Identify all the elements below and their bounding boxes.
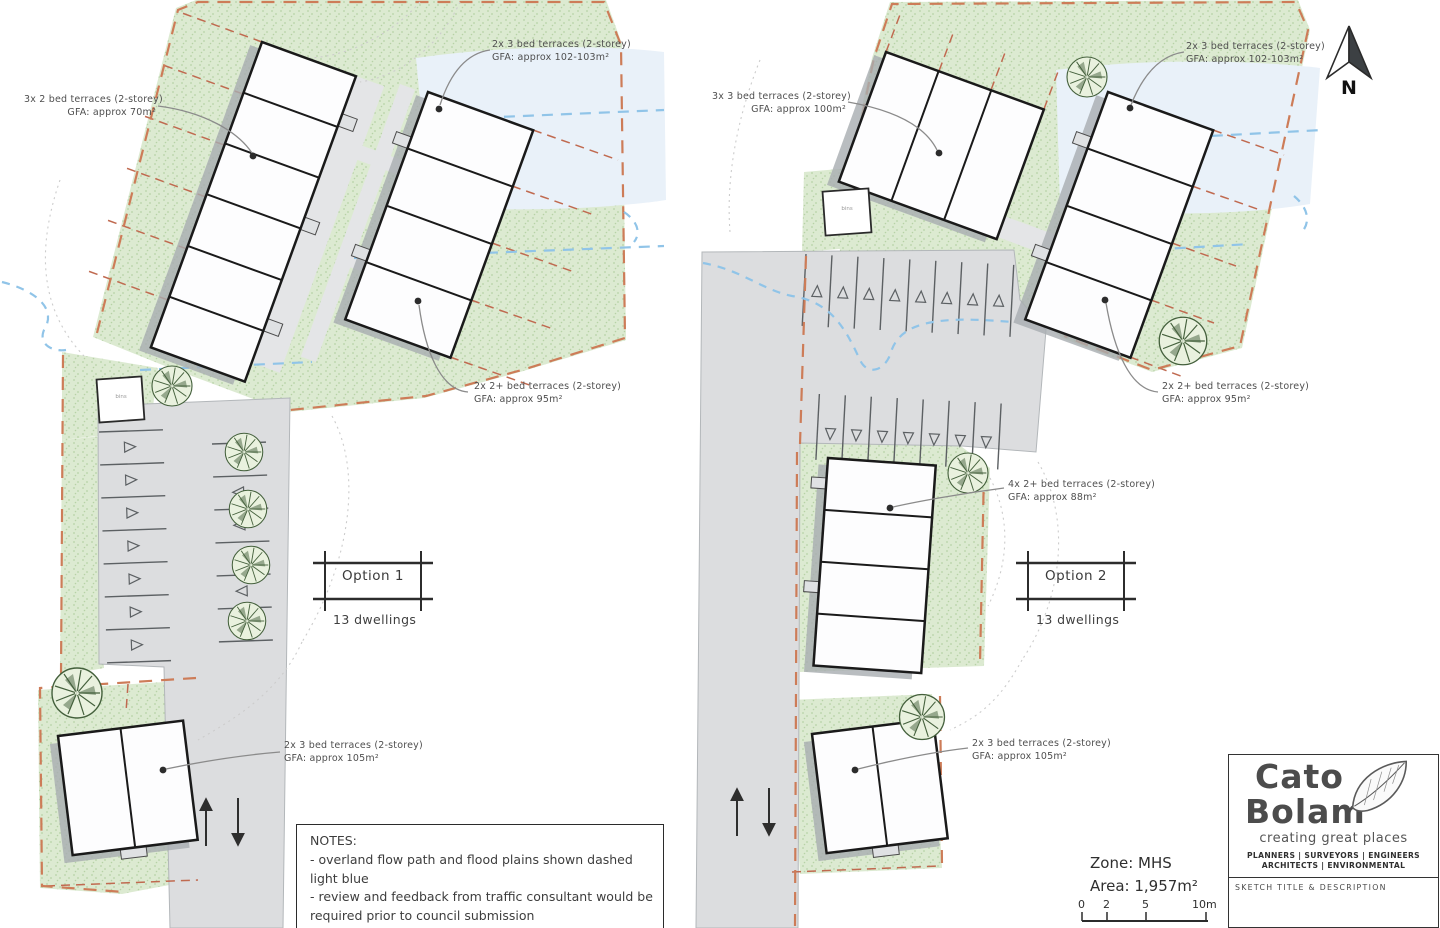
option1-dwellings: 13 dwellings xyxy=(333,612,416,627)
tree-icon xyxy=(948,453,988,493)
terrace-block-c xyxy=(49,721,199,866)
north-arrow-icon xyxy=(1327,26,1371,78)
option1-plan xyxy=(2,0,666,928)
option1-title: Option 1 xyxy=(325,568,421,584)
annotation-opt2-4x2plusbed: 4x 2+ bed terraces (2-storey) GFA: appro… xyxy=(1008,479,1155,505)
annotation-line: GFA: approx 88m² xyxy=(1008,492,1155,505)
bin-store xyxy=(823,188,872,235)
brand-tagline: creating great places xyxy=(1229,831,1438,846)
scale-tick-2: 2 xyxy=(1103,898,1110,911)
annotation-line: GFA: approx 105m² xyxy=(284,753,423,766)
leaf-icon xyxy=(1345,759,1419,815)
annotation-line: 2x 2+ bed terraces (2-storey) xyxy=(1162,381,1309,394)
annotation-opt2-3bed-top: 2x 3 bed terraces (2-storey) GFA: approx… xyxy=(1186,41,1325,67)
annotation-line: GFA: approx 102-103m² xyxy=(1186,54,1325,67)
tree-icon xyxy=(232,546,270,584)
scale-tick-5: 5 xyxy=(1142,898,1149,911)
bin-label: bins xyxy=(833,206,861,212)
annotation-opt1-2plusbed: 2x 2+ bed terraces (2-storey) GFA: appro… xyxy=(474,381,621,407)
annotation-line: 3x 3 bed terraces (2-storey) xyxy=(712,91,846,104)
zone-area-info: Zone: MHS Area: 1,957m² xyxy=(1090,852,1198,897)
annotation-line: GFA: approx 102-103m² xyxy=(492,52,631,65)
terrace-block-g xyxy=(803,719,949,864)
tree-icon xyxy=(52,668,102,718)
area-label: Area: 1,957m² xyxy=(1090,875,1198,898)
services-line1: PLANNERS | SURVEYORS | ENGINEERS xyxy=(1229,851,1438,861)
scale-tick-10m: 10m xyxy=(1192,898,1217,911)
notes-line: - overland flow path and flood plains sh… xyxy=(310,851,653,870)
scale-tick-0: 0 xyxy=(1078,898,1085,911)
annotation-line: 2x 3 bed terraces (2-storey) xyxy=(284,740,423,753)
tree-icon xyxy=(152,366,192,406)
annotation-opt2-2plusbed: 2x 2+ bed terraces (2-storey) GFA: appro… xyxy=(1162,381,1309,407)
annotation-opt1-3bed-bottom: 2x 3 bed terraces (2-storey) GFA: approx… xyxy=(284,740,423,766)
annotation-opt2-3bed-bottom: 2x 3 bed terraces (2-storey) GFA: approx… xyxy=(972,738,1111,764)
option2-dwellings: 13 dwellings xyxy=(1036,612,1119,627)
annotation-line: GFA: approx 95m² xyxy=(1162,394,1309,407)
tree-icon xyxy=(1067,57,1107,97)
scale-bar xyxy=(1082,912,1208,921)
annotation-line: 4x 2+ bed terraces (2-storey) xyxy=(1008,479,1155,492)
north-label: N xyxy=(1341,77,1357,99)
zone-label: Zone: MHS xyxy=(1090,852,1198,875)
annotation-line: 2x 2+ bed terraces (2-storey) xyxy=(474,381,621,394)
notes-line: required prior to council submission xyxy=(310,907,653,926)
notes-line: - review and feedback from traffic consu… xyxy=(310,888,653,907)
annotation-line: 2x 3 bed terraces (2-storey) xyxy=(1186,41,1325,54)
tree-icon xyxy=(900,695,945,740)
notes-title: NOTES: xyxy=(310,832,653,851)
title-block: Cato Bolam creating great places PLANNER… xyxy=(1228,754,1439,928)
annotation-line: 2x 3 bed terraces (2-storey) xyxy=(972,738,1111,751)
notes-box: NOTES: - overland flow path and flood pl… xyxy=(296,824,664,928)
site-plan-graphics xyxy=(0,0,1440,928)
terrace-block-f xyxy=(798,457,936,680)
annotation-line: GFA: approx 95m² xyxy=(474,394,621,407)
annotation-opt1-3bed-top: 2x 3 bed terraces (2-storey) GFA: approx… xyxy=(492,39,631,65)
annotation-line: GFA: approx 105m² xyxy=(972,751,1111,764)
option2-title: Option 2 xyxy=(1028,568,1124,584)
annotation-line: 3x 2 bed terraces (2-storey) xyxy=(24,94,156,107)
annotation-opt1-2bed: 3x 2 bed terraces (2-storey) GFA: approx… xyxy=(24,94,156,120)
sketch-canvas: 3x 2 bed terraces (2-storey) GFA: approx… xyxy=(0,0,1440,928)
annotation-line: GFA: approx 100m² xyxy=(712,104,846,117)
tree-icon xyxy=(1159,317,1207,365)
bin-label: bins xyxy=(107,394,135,400)
annotation-opt2-3bed-left: 3x 3 bed terraces (2-storey) GFA: approx… xyxy=(712,91,846,117)
annotation-line: 2x 3 bed terraces (2-storey) xyxy=(492,39,631,52)
sketch-title-label: SKETCH TITLE & DESCRIPTION xyxy=(1229,878,1438,892)
services-line2: ARCHITECTS | ENVIRONMENTAL xyxy=(1229,861,1438,871)
notes-line: light blue xyxy=(310,870,653,889)
annotation-line: GFA: approx 70m² xyxy=(24,107,156,120)
tree-icon xyxy=(228,602,266,640)
tree-icon xyxy=(225,433,263,471)
tree-icon xyxy=(229,490,267,528)
